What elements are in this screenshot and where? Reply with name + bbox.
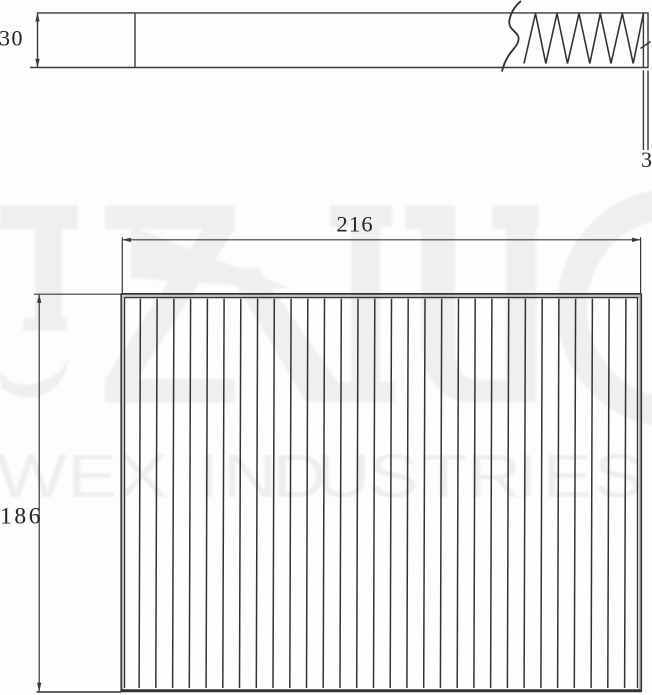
svg-text:186: 186: [0, 504, 43, 530]
svg-text:3: 3: [641, 147, 652, 172]
svg-text:30: 30: [0, 26, 24, 51]
svg-text:WEX INDUSTRIES: WEX INDUSTRIES: [0, 441, 644, 510]
svg-text:216: 216: [337, 212, 374, 237]
